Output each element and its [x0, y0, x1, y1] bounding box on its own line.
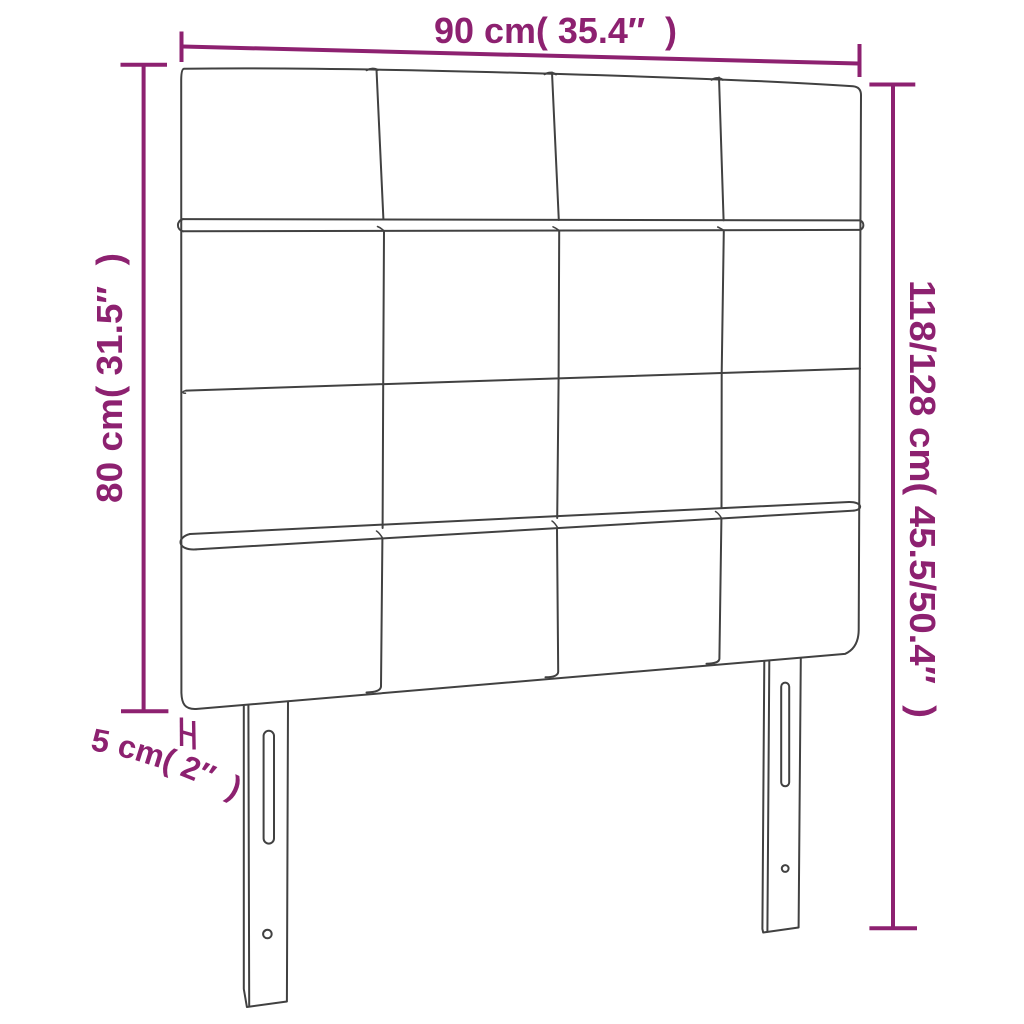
svg-text:90 cm( 35.4″ ): 90 cm( 35.4″ ): [434, 10, 677, 51]
svg-text:118/128 cm( 45.5/50.4″ ): 118/128 cm( 45.5/50.4″ ): [902, 280, 943, 718]
svg-text:80 cm( 31.5″ ): 80 cm( 31.5″ ): [89, 253, 130, 503]
svg-text:5 cm( 2″ ): 5 cm( 2″ ): [88, 721, 247, 805]
